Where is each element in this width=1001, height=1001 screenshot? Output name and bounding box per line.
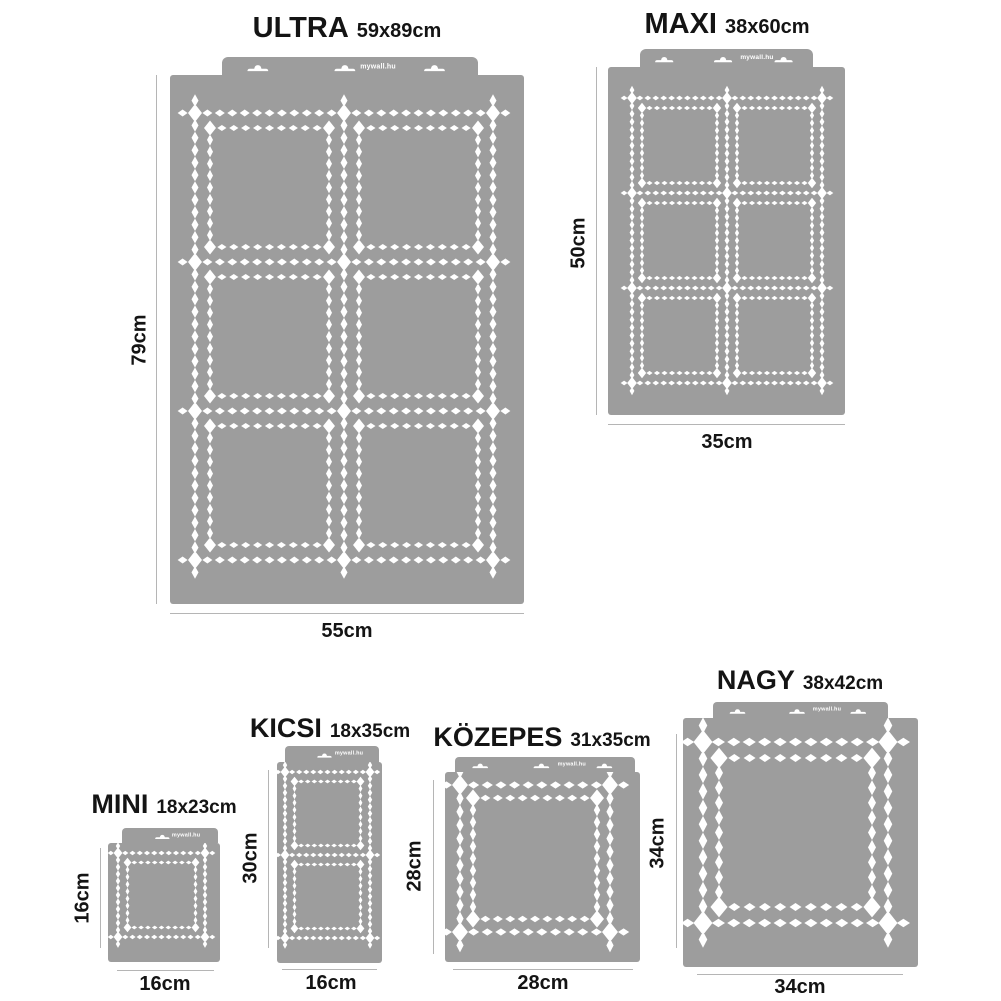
height-dimension-label: 34cm: [647, 817, 670, 868]
height-dimension-line: [596, 67, 597, 415]
stencil-title: KICSI 18x35cm: [250, 713, 410, 744]
width-dimension-label: 55cm: [321, 620, 372, 643]
stencil-name: ULTRA: [253, 12, 349, 45]
diamond-frame-pattern: [683, 718, 918, 967]
hanger-holes-icon: [285, 746, 379, 762]
height-dimension-label: 28cm: [404, 840, 427, 891]
stencil-name: KICSI: [250, 713, 322, 744]
width-dimension-line: [282, 969, 377, 970]
hang-tab: mywall.hu: [640, 49, 813, 67]
hang-tab: mywall.hu: [713, 702, 888, 718]
stencil-name: MAXI: [644, 8, 717, 41]
width-dimension-line: [170, 613, 524, 614]
brand-label: mywall.hu: [813, 707, 841, 713]
height-dimension-line: [676, 734, 677, 948]
diamond-frame-pattern: [170, 75, 524, 604]
brand-label: mywall.hu: [740, 55, 773, 62]
height-dimension-label: 30cm: [240, 832, 263, 883]
diamond-frame-pattern: [277, 762, 382, 963]
stencil-body: [608, 67, 845, 415]
hanger-holes-icon: [713, 702, 888, 718]
height-dimension-line: [268, 770, 269, 948]
stencil-size: 31x35cm: [570, 730, 650, 752]
hanger-holes-icon: [222, 57, 478, 76]
width-dimension-label: 16cm: [305, 972, 356, 995]
hanger-holes-icon: [455, 757, 635, 772]
stencil-title: KÖZEPES 31x35cm: [433, 722, 650, 753]
stencil-title: NAGY 38x42cm: [717, 665, 883, 696]
width-dimension-label: 16cm: [139, 973, 190, 996]
stencil-body: [277, 762, 382, 963]
stencil-name: NAGY: [717, 665, 795, 696]
stencil-title: MINI 18x23cm: [91, 789, 236, 820]
stencil-size: 59x89cm: [357, 20, 442, 43]
brand-label: mywall.hu: [335, 751, 363, 757]
brand-label: mywall.hu: [172, 833, 200, 839]
brand-label: mywall.hu: [558, 762, 586, 768]
width-dimension-line: [608, 424, 845, 425]
width-dimension-label: 28cm: [517, 972, 568, 995]
width-dimension-line: [117, 970, 214, 971]
hang-tab: mywall.hu: [285, 746, 379, 762]
width-dimension-label: 35cm: [701, 431, 752, 454]
stencil-body: [683, 718, 918, 967]
hang-tab: mywall.hu: [122, 828, 218, 843]
stencil-body: [108, 843, 220, 962]
diamond-frame-pattern: [608, 67, 845, 415]
hanger-holes-icon: [640, 49, 813, 67]
hanger-holes-icon: [122, 828, 218, 843]
width-dimension-line: [453, 969, 633, 970]
width-dimension-line: [697, 974, 903, 975]
stencil-name: MINI: [91, 789, 148, 820]
diamond-frame-pattern: [445, 772, 640, 962]
brand-label: mywall.hu: [360, 63, 396, 70]
stencil-size: 38x60cm: [725, 16, 810, 39]
height-dimension-line: [100, 848, 101, 948]
width-dimension-label: 34cm: [774, 976, 825, 999]
stencil-body: [445, 772, 640, 962]
stencil-size: 38x42cm: [803, 673, 883, 695]
height-dimension-line: [156, 75, 157, 604]
stencil-body: [170, 75, 524, 604]
stencil-title: ULTRA 59x89cm: [253, 12, 442, 45]
hang-tab: mywall.hu: [222, 57, 478, 76]
hang-tab: mywall.hu: [455, 757, 635, 772]
height-dimension-label: 16cm: [72, 872, 95, 923]
height-dimension-label: 50cm: [568, 217, 591, 268]
stencil-title: MAXI 38x60cm: [644, 8, 809, 41]
height-dimension-label: 79cm: [129, 314, 152, 365]
stencil-size: 18x35cm: [330, 721, 410, 743]
diamond-frame-pattern: [108, 843, 220, 962]
stencil-size: 18x23cm: [156, 797, 236, 819]
stencil-name: KÖZEPES: [433, 722, 562, 753]
height-dimension-line: [433, 780, 434, 954]
stencil-size-chart: ULTRA 59x89cm mywall.hu 79cm 55cm MAXI 3…: [0, 0, 1001, 1001]
